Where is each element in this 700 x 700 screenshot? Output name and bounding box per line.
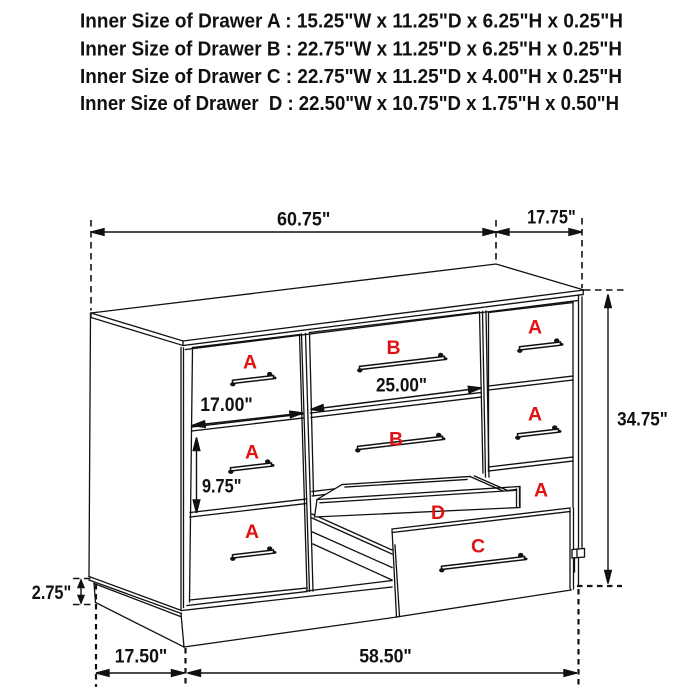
svg-text:60.75": 60.75" (277, 210, 330, 231)
svg-text:Inner Size of Drawer C : 22.75: Inner Size of Drawer C : 22.75"W x 11.25… (80, 66, 622, 88)
svg-text:A: A (534, 480, 548, 502)
svg-text:D: D (431, 502, 445, 524)
svg-text:17.50": 17.50" (115, 647, 168, 668)
svg-text:17.75": 17.75" (527, 208, 576, 229)
svg-text:58.50": 58.50" (359, 647, 412, 668)
svg-text:2.75": 2.75" (32, 582, 72, 604)
svg-text:C: C (471, 536, 485, 558)
svg-text:34.75": 34.75" (617, 410, 668, 431)
svg-text:B: B (386, 337, 400, 359)
svg-text:17.00": 17.00" (200, 395, 253, 416)
svg-text:9.75": 9.75" (202, 476, 242, 497)
svg-text:B: B (389, 429, 403, 451)
svg-text:Inner Size of Drawer A : 15.25: Inner Size of Drawer A : 15.25"W x 11.25… (80, 11, 623, 33)
svg-text:A: A (528, 404, 542, 426)
svg-text:25.00": 25.00" (376, 376, 427, 397)
svg-text:A: A (245, 521, 259, 543)
svg-text:A: A (243, 352, 257, 374)
svg-text:A: A (528, 317, 542, 339)
svg-text:A: A (245, 442, 259, 464)
svg-text:Inner Size of Drawer B : 22.75: Inner Size of Drawer B : 22.75"W x 11.25… (80, 39, 622, 61)
svg-text:Inner Size of Drawer D : 22.5: Inner Size of Drawer D : 22.50"W x 10.75… (80, 93, 619, 115)
